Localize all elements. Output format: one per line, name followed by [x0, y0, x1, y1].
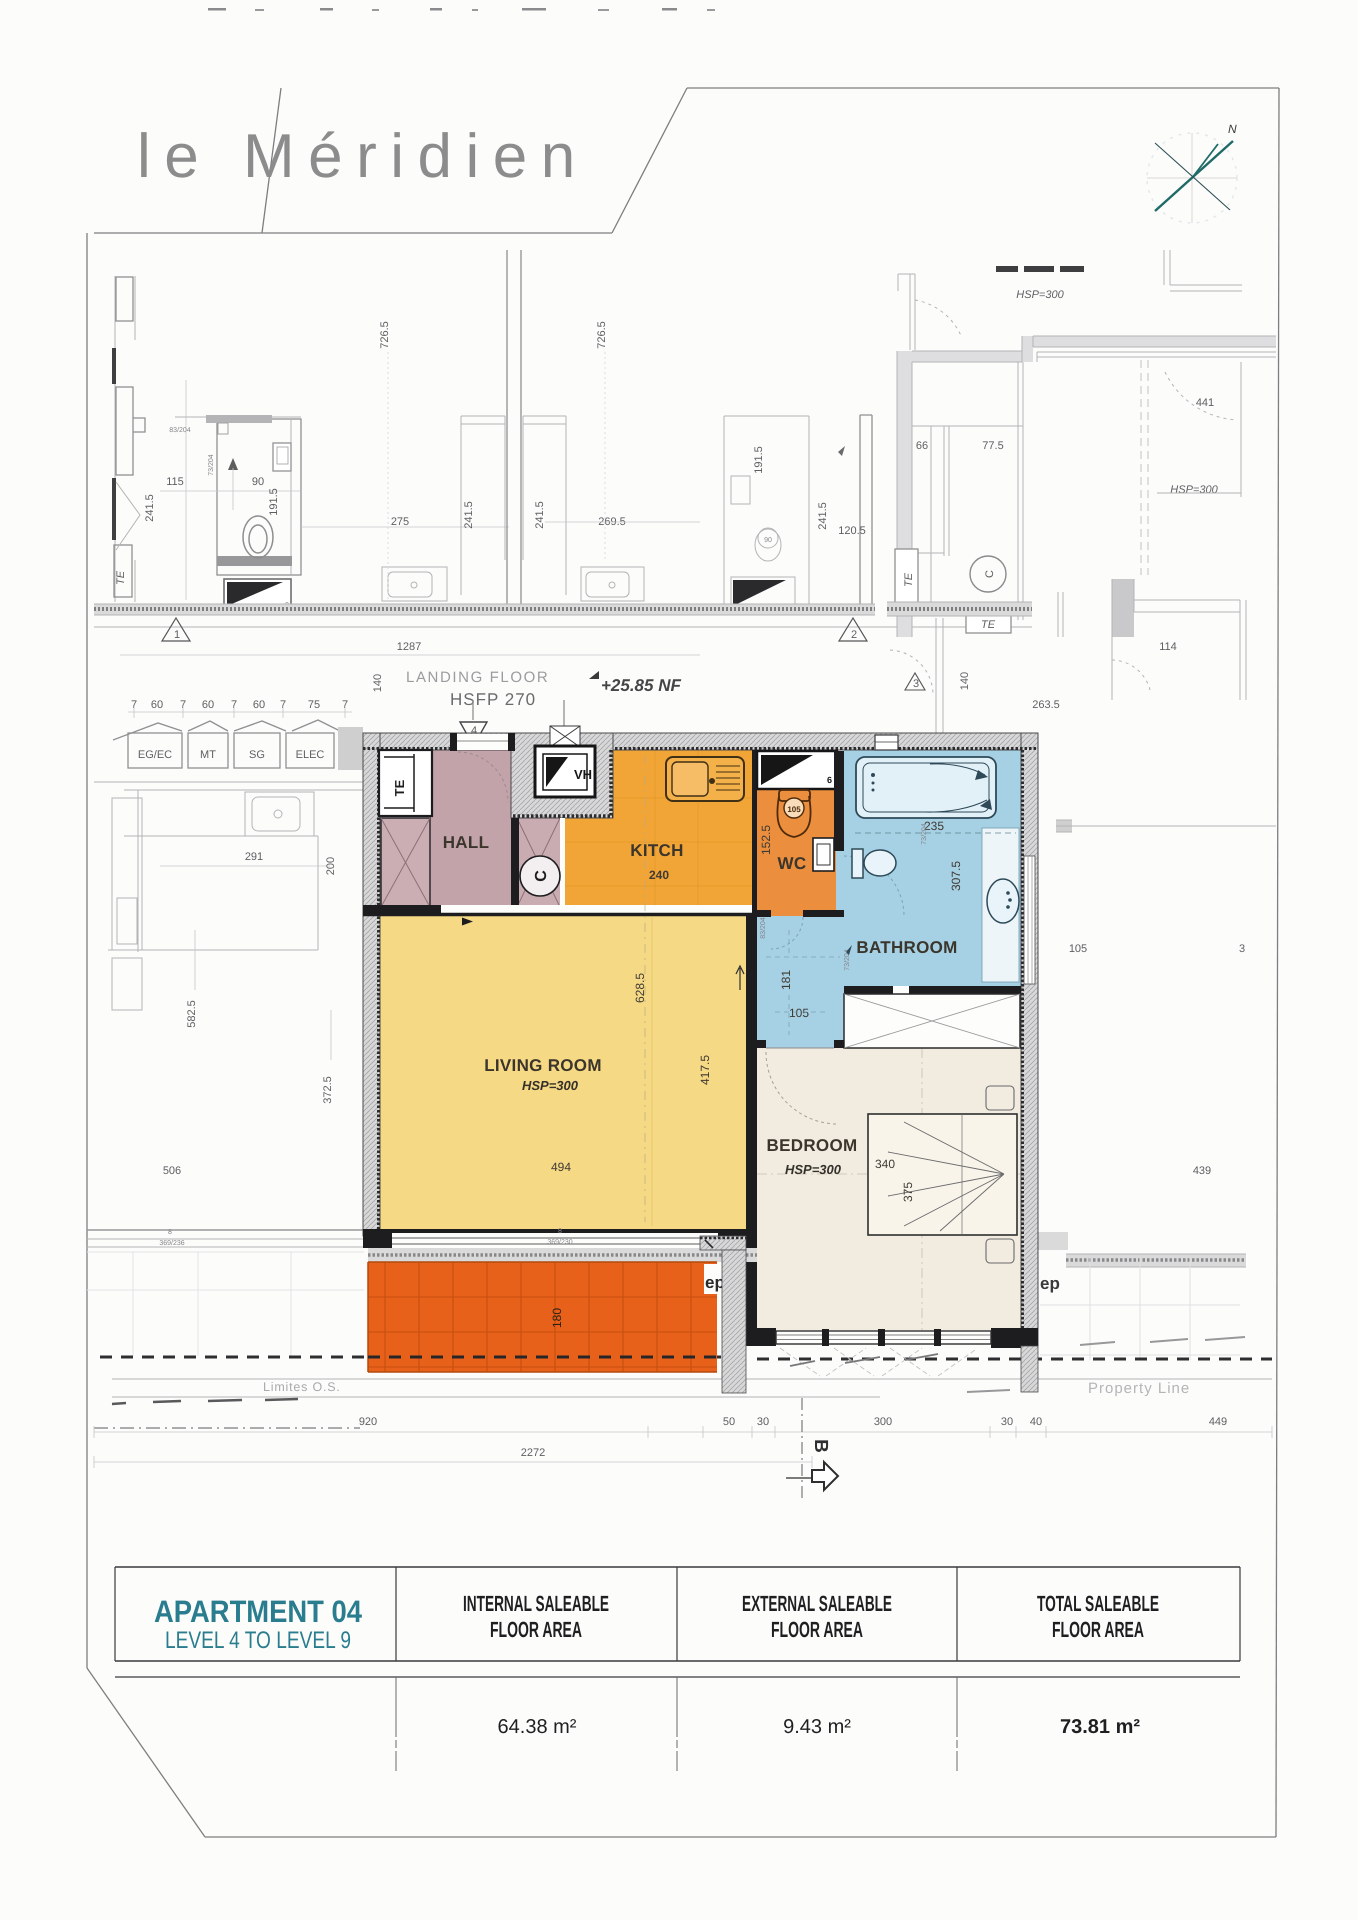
svg-text:241.5: 241.5 — [817, 502, 829, 530]
svg-text:8: 8 — [168, 1229, 172, 1236]
svg-text:83/204: 83/204 — [759, 917, 767, 939]
svg-text:9.43 m²: 9.43 m² — [783, 1716, 851, 1738]
svg-text:726.5: 726.5 — [596, 321, 608, 349]
svg-text:152.5: 152.5 — [759, 825, 773, 855]
svg-text:506: 506 — [163, 1165, 181, 1177]
svg-text:30: 30 — [757, 1416, 769, 1428]
svg-text:LANDING FLOOR: LANDING FLOOR — [406, 669, 549, 686]
svg-text:TOTAL SALEABLE: TOTAL SALEABLE — [1037, 1591, 1159, 1616]
svg-text:EG/EC: EG/EC — [138, 749, 172, 761]
svg-text:140: 140 — [959, 672, 971, 690]
svg-text:105: 105 — [789, 1006, 809, 1020]
svg-text:369/230: 369/230 — [547, 1238, 572, 1246]
svg-text:114: 114 — [1159, 641, 1177, 653]
svg-text:291: 291 — [245, 851, 263, 863]
svg-text:60: 60 — [253, 699, 265, 711]
svg-text:90: 90 — [252, 476, 264, 488]
svg-text:240: 240 — [649, 868, 669, 882]
svg-text:3: 3 — [913, 678, 919, 690]
svg-text:920: 920 — [359, 1416, 377, 1428]
svg-text:FLOOR AREA: FLOOR AREA — [771, 1617, 863, 1642]
svg-text:BATHROOM: BATHROOM — [856, 938, 957, 957]
svg-text:60: 60 — [151, 699, 163, 711]
svg-text:3: 3 — [1239, 943, 1245, 955]
svg-text:HSP=300: HSP=300 — [1170, 484, 1218, 496]
svg-text:120.5: 120.5 — [838, 525, 866, 537]
svg-text:B: B — [810, 1439, 831, 1453]
svg-text:Limites O.S.: Limites O.S. — [263, 1380, 341, 1394]
svg-text:HSP=300: HSP=300 — [785, 1162, 842, 1177]
svg-text:LEVEL 4 TO LEVEL 9: LEVEL 4 TO LEVEL 9 — [165, 1627, 351, 1654]
svg-text:FLOOR AREA: FLOOR AREA — [1052, 1617, 1144, 1642]
svg-text:494: 494 — [551, 1160, 571, 1174]
svg-text:300: 300 — [874, 1416, 892, 1428]
svg-text:EXTERNAL SALEABLE: EXTERNAL SALEABLE — [742, 1591, 892, 1616]
svg-text:HSFP 270: HSFP 270 — [450, 690, 536, 709]
svg-text:77.5: 77.5 — [982, 440, 1003, 452]
svg-text:73/204: 73/204 — [207, 454, 215, 476]
svg-text:C: C — [533, 870, 550, 882]
svg-text:SG: SG — [249, 749, 265, 761]
svg-text:191.5: 191.5 — [268, 488, 280, 516]
svg-text:LIVING ROOM: LIVING ROOM — [484, 1056, 602, 1075]
svg-text:73.81 m²: 73.81 m² — [1060, 1716, 1140, 1738]
svg-text:C: C — [984, 570, 996, 578]
svg-text:2272: 2272 — [521, 1447, 545, 1459]
svg-text:200: 200 — [325, 857, 337, 875]
svg-text:WC: WC — [778, 854, 807, 873]
svg-text:340: 340 — [875, 1157, 895, 1171]
svg-text:1: 1 — [174, 629, 180, 641]
svg-text:VH: VH — [574, 767, 592, 782]
svg-text:2: 2 — [851, 629, 857, 641]
svg-text:le Méridien: le Méridien — [137, 122, 589, 191]
svg-text:TE: TE — [981, 619, 996, 631]
svg-text:241.5: 241.5 — [144, 494, 156, 522]
svg-text:FLOOR AREA: FLOOR AREA — [490, 1617, 582, 1642]
svg-text:115: 115 — [166, 476, 184, 488]
svg-text:441: 441 — [1196, 397, 1214, 409]
svg-text:TE: TE — [903, 572, 915, 587]
svg-text:KITCH: KITCH — [630, 841, 683, 860]
svg-text:8: 8 — [558, 1228, 562, 1235]
svg-text:50: 50 — [723, 1416, 735, 1428]
svg-text:ELEC: ELEC — [296, 749, 325, 761]
svg-text:HSP=300: HSP=300 — [1016, 289, 1064, 301]
svg-text:Property Line: Property Line — [1088, 1380, 1190, 1397]
svg-text:369/236: 369/236 — [159, 1239, 184, 1247]
svg-text:MT: MT — [200, 749, 216, 761]
svg-text:83/204: 83/204 — [169, 426, 191, 434]
svg-text:66: 66 — [916, 440, 928, 452]
svg-text:N: N — [1228, 122, 1237, 136]
svg-text:HSP=300: HSP=300 — [522, 1078, 579, 1093]
svg-text:HALL: HALL — [443, 833, 490, 852]
svg-text:140: 140 — [372, 674, 384, 692]
svg-text:241.5: 241.5 — [463, 501, 475, 529]
svg-text:241.5: 241.5 — [534, 501, 546, 529]
svg-text:417.5: 417.5 — [698, 1055, 712, 1085]
svg-text:1287: 1287 — [397, 641, 421, 653]
svg-text:628.5: 628.5 — [633, 973, 647, 1003]
svg-text:449: 449 — [1209, 1416, 1227, 1428]
svg-text:TE: TE — [115, 570, 127, 585]
svg-text:90: 90 — [764, 537, 772, 544]
svg-text:6: 6 — [827, 775, 832, 785]
svg-text:105: 105 — [787, 805, 801, 814]
svg-text:180: 180 — [550, 1308, 564, 1328]
svg-text:181: 181 — [779, 970, 793, 990]
svg-text:372.5: 372.5 — [322, 1076, 334, 1104]
svg-text:64.38 m²: 64.38 m² — [498, 1716, 577, 1738]
svg-text:726.5: 726.5 — [379, 321, 391, 349]
svg-text:263.5: 263.5 — [1032, 699, 1060, 711]
svg-text:40: 40 — [1030, 1416, 1042, 1428]
svg-text:105: 105 — [1069, 943, 1087, 955]
svg-text:191.5: 191.5 — [753, 446, 765, 474]
svg-text:439: 439 — [1193, 1165, 1211, 1177]
svg-text:582.5: 582.5 — [186, 1000, 198, 1028]
svg-text:ep: ep — [1040, 1274, 1060, 1293]
svg-text:73/204: 73/204 — [920, 823, 928, 845]
svg-text:307.5: 307.5 — [949, 861, 963, 891]
svg-text:TE: TE — [392, 779, 407, 796]
svg-text:30: 30 — [1001, 1416, 1013, 1428]
svg-text:60: 60 — [202, 699, 214, 711]
svg-text:375: 375 — [901, 1182, 915, 1202]
svg-text:+25.85 NF: +25.85 NF — [601, 676, 681, 695]
svg-text:APARTMENT 04: APARTMENT 04 — [154, 1594, 363, 1629]
svg-text:BEDROOM: BEDROOM — [767, 1136, 858, 1155]
svg-text:INTERNAL SALEABLE: INTERNAL SALEABLE — [463, 1591, 609, 1616]
svg-text:75: 75 — [308, 699, 320, 711]
svg-text:275: 275 — [391, 516, 409, 528]
